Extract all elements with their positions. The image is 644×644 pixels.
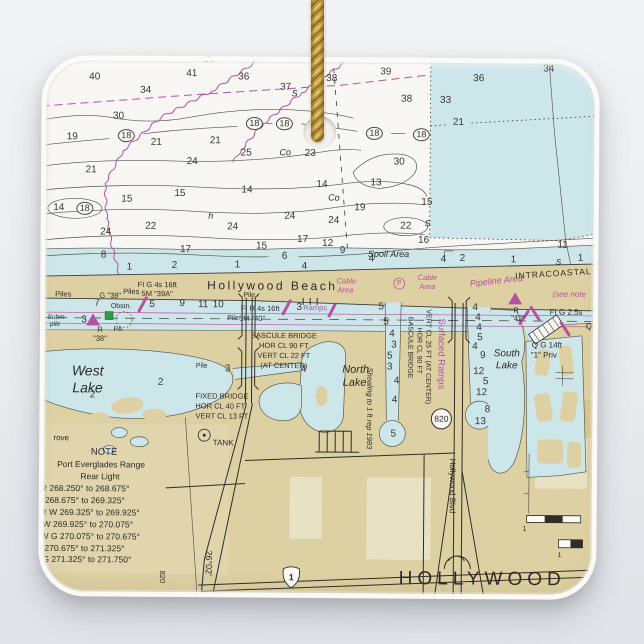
depth-number: 10 [213, 300, 224, 310]
depth-number: 4 [441, 255, 447, 265]
chart-label: HOR CL 90 FT [259, 342, 309, 350]
depth-number: 5 [378, 302, 384, 312]
chart-label: Shoaling to 1 ft rep 1983 [365, 367, 373, 449]
circled-depth-number: 18 [276, 117, 293, 130]
chart-label: S [425, 219, 431, 228]
depth-number: 17 [180, 245, 191, 255]
depth-number: 36 [473, 74, 484, 84]
chart-label: FI G 2.5s [550, 309, 583, 317]
depth-number: 4 [394, 377, 400, 387]
depth-number: 38 [326, 74, 337, 84]
chart-label: "1" Priv [531, 351, 557, 359]
chart-label: Area [419, 283, 435, 291]
depth-number: 12 [322, 239, 333, 249]
circled-depth-number: 18 [366, 127, 383, 140]
depth-number: 9 [480, 351, 486, 361]
depth-number: 36 [238, 72, 249, 82]
chart-label: Obstn. [111, 303, 132, 310]
chart-label: h [208, 212, 213, 221]
chart-label: S [292, 89, 298, 98]
depth-number: 3 [391, 341, 397, 351]
chart-label: HOLLYWOOD [399, 569, 566, 589]
chart-label: Q G 14ft [532, 341, 562, 349]
chart-label: S [556, 259, 561, 267]
depth-number: 12 [476, 388, 487, 398]
chart-label: FIXED BRIDGE [195, 392, 248, 400]
chart-label: Lake [343, 378, 367, 389]
depth-number: 17 [297, 235, 308, 245]
chart-label: 268.675° to 269.325° [45, 496, 125, 505]
chart-label: Rear Light [80, 472, 119, 481]
chart-label: W G 270.075° to 270.675° [41, 532, 140, 541]
chart-label: West [72, 363, 104, 377]
depth-number: 21 [85, 165, 96, 175]
chart-label: 1 [289, 573, 294, 582]
depth-number: 8 [101, 250, 107, 260]
circled-depth-number: 18 [118, 129, 135, 142]
depth-number: 15 [421, 198, 432, 208]
depth-number: 5 [149, 300, 155, 310]
depth-number: 34 [140, 86, 151, 96]
chart-label: PA [114, 326, 123, 333]
depth-number: 4 [389, 329, 395, 339]
depth-number: 5 [383, 317, 389, 327]
chart-label: Pile [243, 292, 255, 299]
chart-label: INTRACOASTAL [515, 267, 592, 280]
depth-number: 2 [158, 378, 164, 388]
chart-label: R W 269.325° to 269.925° [41, 508, 140, 517]
chart-label: BASCULE BRIDGE [251, 332, 317, 340]
chart-label: South [494, 349, 520, 359]
depth-number: 33 [440, 96, 451, 106]
chart-label: Co [328, 194, 340, 203]
depth-number: 13 [475, 417, 486, 427]
chart-label: Port Everglades Range [57, 460, 145, 469]
depth-number: 24 [328, 216, 339, 226]
depth-number: 14 [241, 185, 252, 195]
depth-number: 4 [369, 254, 375, 264]
chart-label: R [97, 326, 102, 334]
depth-number: 3 [225, 364, 231, 374]
depth-number: 1 [127, 263, 133, 273]
chart-label: R 268.250° to 268.675° [41, 484, 130, 493]
depth-number: 13 [370, 178, 381, 188]
chart-label: 820 [158, 571, 166, 584]
circled-depth-number: 18 [584, 65, 600, 78]
depth-number: 3 [387, 362, 393, 372]
gold-hanging-cord [311, 0, 324, 142]
depth-number: 5 [390, 430, 396, 440]
depth-number: 21 [210, 136, 221, 146]
chart-label: FI R 4s 16ft [241, 305, 280, 313]
depth-number: 4 [301, 365, 307, 375]
chart-label: 5M "40" [239, 315, 265, 323]
depth-number: 3 [296, 303, 302, 313]
chart-label: 26°02' [204, 551, 213, 576]
chart-label: Surfaced Ramps [436, 318, 446, 389]
chart-label: FI G 4s 16ft [138, 281, 177, 289]
depth-number: 37 [280, 83, 291, 93]
chart-label: VERT CL 25 FT (AT CENTER) [424, 309, 432, 404]
depth-number: 1 [578, 254, 584, 264]
product-photo-stage: CoSCoCohSSSpoil AreaHollywood BeachCable… [0, 0, 644, 644]
chart-label: 270.675° to 271.325° [44, 544, 124, 553]
depth-number: 1 [511, 255, 517, 265]
depth-number: 9 [179, 299, 185, 309]
chart-label: (see note [553, 291, 586, 299]
depth-number: 25 [241, 148, 252, 158]
chart-label: W 269.925° to 270.075° [43, 520, 134, 529]
depth-number: 38 [401, 95, 412, 105]
depth-number: 15 [121, 195, 132, 205]
chart-label: G 271.325° to 271.750° [42, 555, 131, 564]
depth-number: 5 [483, 377, 489, 387]
depth-number: 14 [316, 180, 327, 190]
chart-label: pile [50, 322, 60, 329]
depth-number: 11 [198, 300, 208, 310]
chart-label: HOR CL 40 FT [195, 402, 245, 410]
depth-number: 4 [392, 396, 398, 406]
depth-number: 3 [81, 315, 87, 325]
chart-label: "38" [93, 335, 107, 343]
depth-number: 2 [90, 390, 96, 400]
depth-number: 21 [453, 118, 464, 128]
depth-number: 9 [340, 246, 346, 256]
depth-number: 14 [53, 203, 64, 213]
depth-number: 8 [485, 405, 491, 415]
chart-label: HOR CL 90 FT [415, 327, 422, 373]
depth-number: 24 [227, 222, 238, 232]
chart-label: Co [279, 148, 291, 157]
chart-label: Piles [123, 288, 139, 296]
chart-label: rove [53, 434, 69, 442]
depth-number: 24 [100, 227, 111, 237]
depth-number: 6 [282, 252, 288, 262]
chart-label: 5M "39A" [142, 290, 173, 298]
depth-number: 24 [187, 157, 198, 167]
depth-number: 2 [172, 261, 178, 271]
chart-label: BASCULE BRIDGE [406, 317, 413, 379]
chart-label: "42" [511, 315, 525, 323]
circled-depth-number: 18 [246, 117, 263, 130]
depth-number: 19 [67, 132, 78, 142]
depth-number: 1 [235, 260, 241, 270]
chart-label: 1 [557, 552, 561, 559]
depth-number: 15 [174, 189, 185, 199]
depth-number: 41 [186, 69, 197, 79]
chart-label: Hollywood Beach [207, 279, 337, 292]
chart-label: VERT CL 22 FT [257, 352, 310, 360]
depth-number: 40 [89, 72, 100, 82]
depth-number: 21 [151, 138, 162, 148]
depth-number: 11 [557, 241, 567, 251]
depth-number: 24 [284, 212, 295, 222]
chart-label: Hollywood Blvd [448, 459, 456, 514]
chart-label: TANK [213, 439, 234, 447]
circled-depth-number: 18 [413, 128, 430, 141]
depth-number: 2 [460, 254, 466, 264]
chart-label: G "39" [99, 292, 121, 300]
chart-label: Cable [418, 274, 438, 282]
chart-label: Area [337, 286, 353, 294]
chart-label: 1 [523, 526, 527, 533]
depth-number: 30 [113, 112, 124, 122]
depth-number: 30 [394, 158, 405, 168]
depth-number: 19 [354, 203, 365, 213]
chart-label: Lake [496, 361, 518, 371]
chart-label: Co [203, 55, 215, 64]
circled-depth-number: 18 [76, 202, 93, 215]
depth-number: 5 [387, 351, 393, 361]
chart-label: Pile [196, 363, 208, 370]
depth-number: 7 [94, 298, 100, 308]
chart-label: Pile [227, 315, 239, 322]
chart-label: Q [586, 323, 592, 331]
chart-label: Piles [55, 290, 71, 298]
depth-number: 4 [472, 342, 478, 352]
depth-number: 4 [302, 262, 308, 272]
depth-number: 16 [418, 236, 429, 246]
chart-label: Lake [72, 380, 102, 394]
chart-label: P [397, 280, 402, 287]
chart-label: VERT CL 13 FT [195, 412, 248, 420]
depth-number: 22 [400, 222, 411, 232]
depth-number: 15 [256, 242, 267, 252]
chart-label: Ramps [303, 304, 327, 312]
chart-label: 820 [434, 415, 448, 424]
depth-number: 22 [145, 222, 156, 232]
depth-number: 23 [305, 149, 316, 159]
chart-label: Cable [336, 277, 356, 285]
depth-number: 34 [543, 65, 554, 75]
depth-number: 39 [380, 67, 391, 77]
chart-label: NOTE [91, 448, 117, 458]
